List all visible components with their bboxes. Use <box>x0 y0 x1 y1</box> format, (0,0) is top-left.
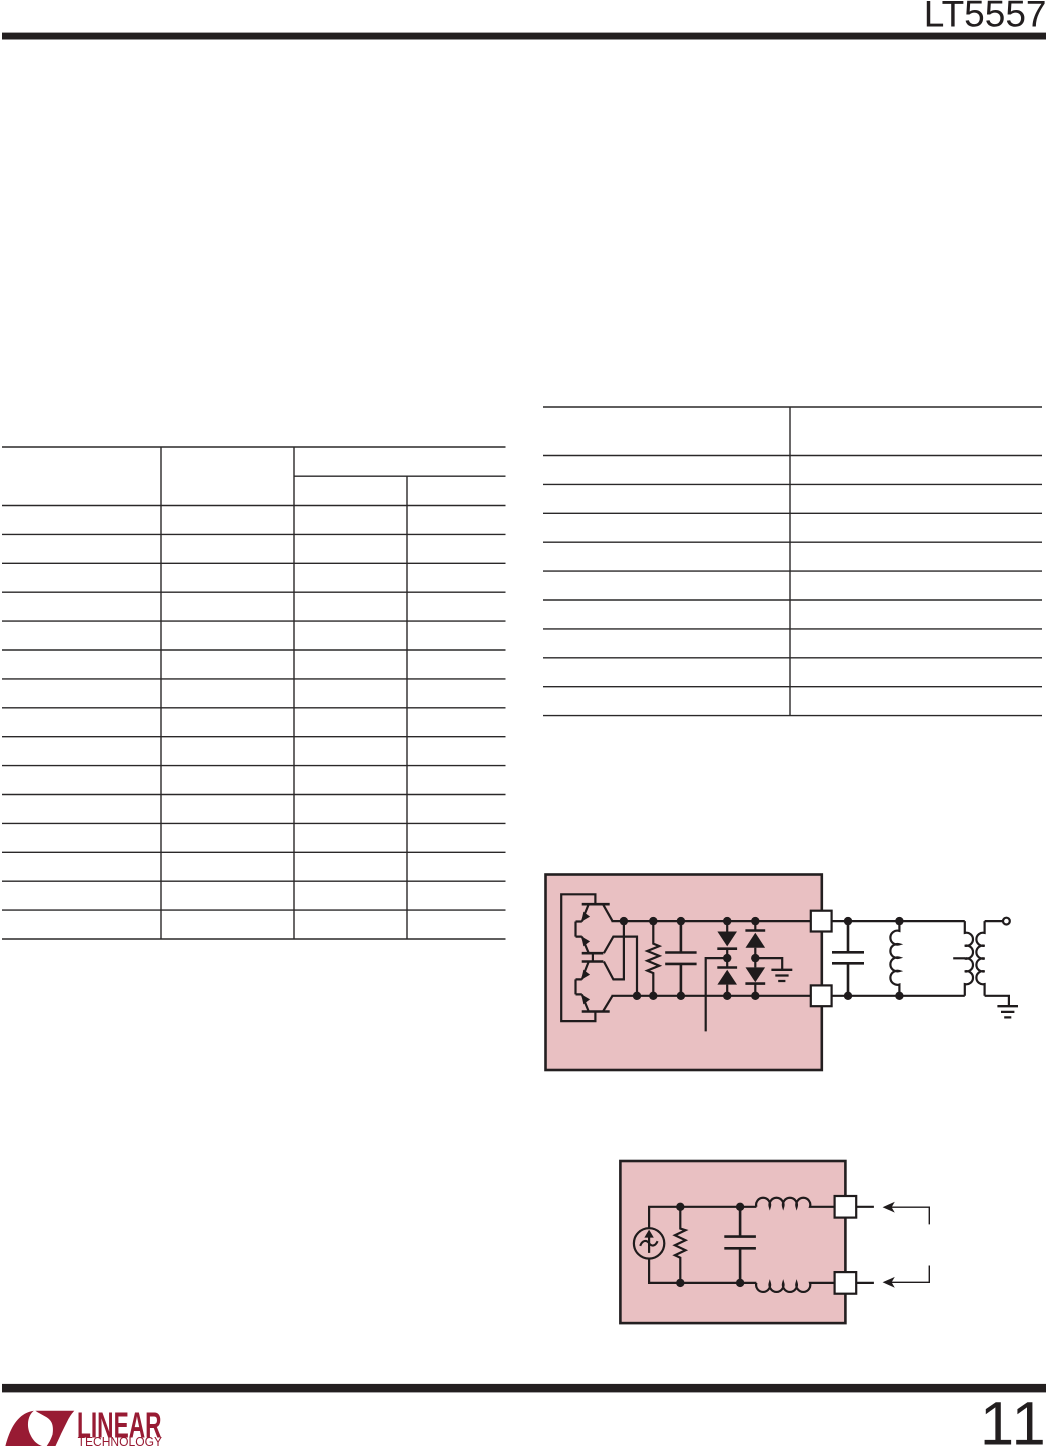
svg-text:TECHNOLOGY: TECHNOLOGY <box>78 1434 163 1446</box>
svg-text:11: 11 <box>980 1389 1046 1446</box>
svg-text:LT5557: LT5557 <box>924 0 1046 35</box>
